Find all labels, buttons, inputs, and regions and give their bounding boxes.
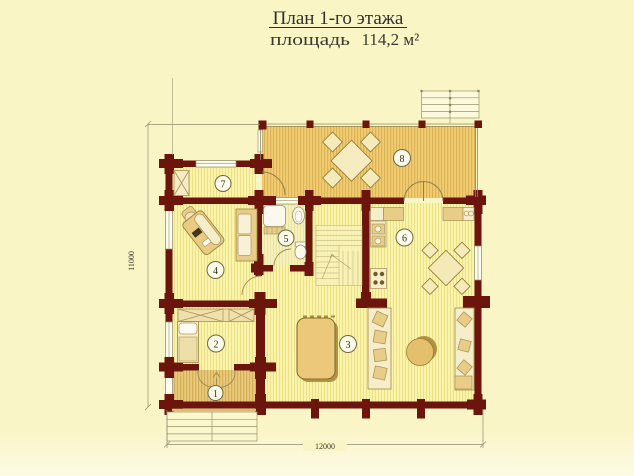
svg-text:1: 1 [213,389,218,400]
svg-text:План 1-го этажа: План 1-го этажа [273,8,404,29]
svg-text:5: 5 [284,234,289,245]
svg-text:8: 8 [400,154,405,165]
svg-text:3: 3 [346,340,351,351]
svg-text:12000: 12000 [315,442,335,451]
svg-text:7: 7 [221,180,226,191]
svg-text:6: 6 [402,234,407,245]
svg-text:площадь: площадь [270,30,350,49]
svg-text:2: 2 [214,340,219,351]
svg-text:114,2 м²: 114,2 м² [362,30,420,49]
svg-text:4: 4 [213,266,218,277]
svg-text:11000: 11000 [127,251,136,271]
